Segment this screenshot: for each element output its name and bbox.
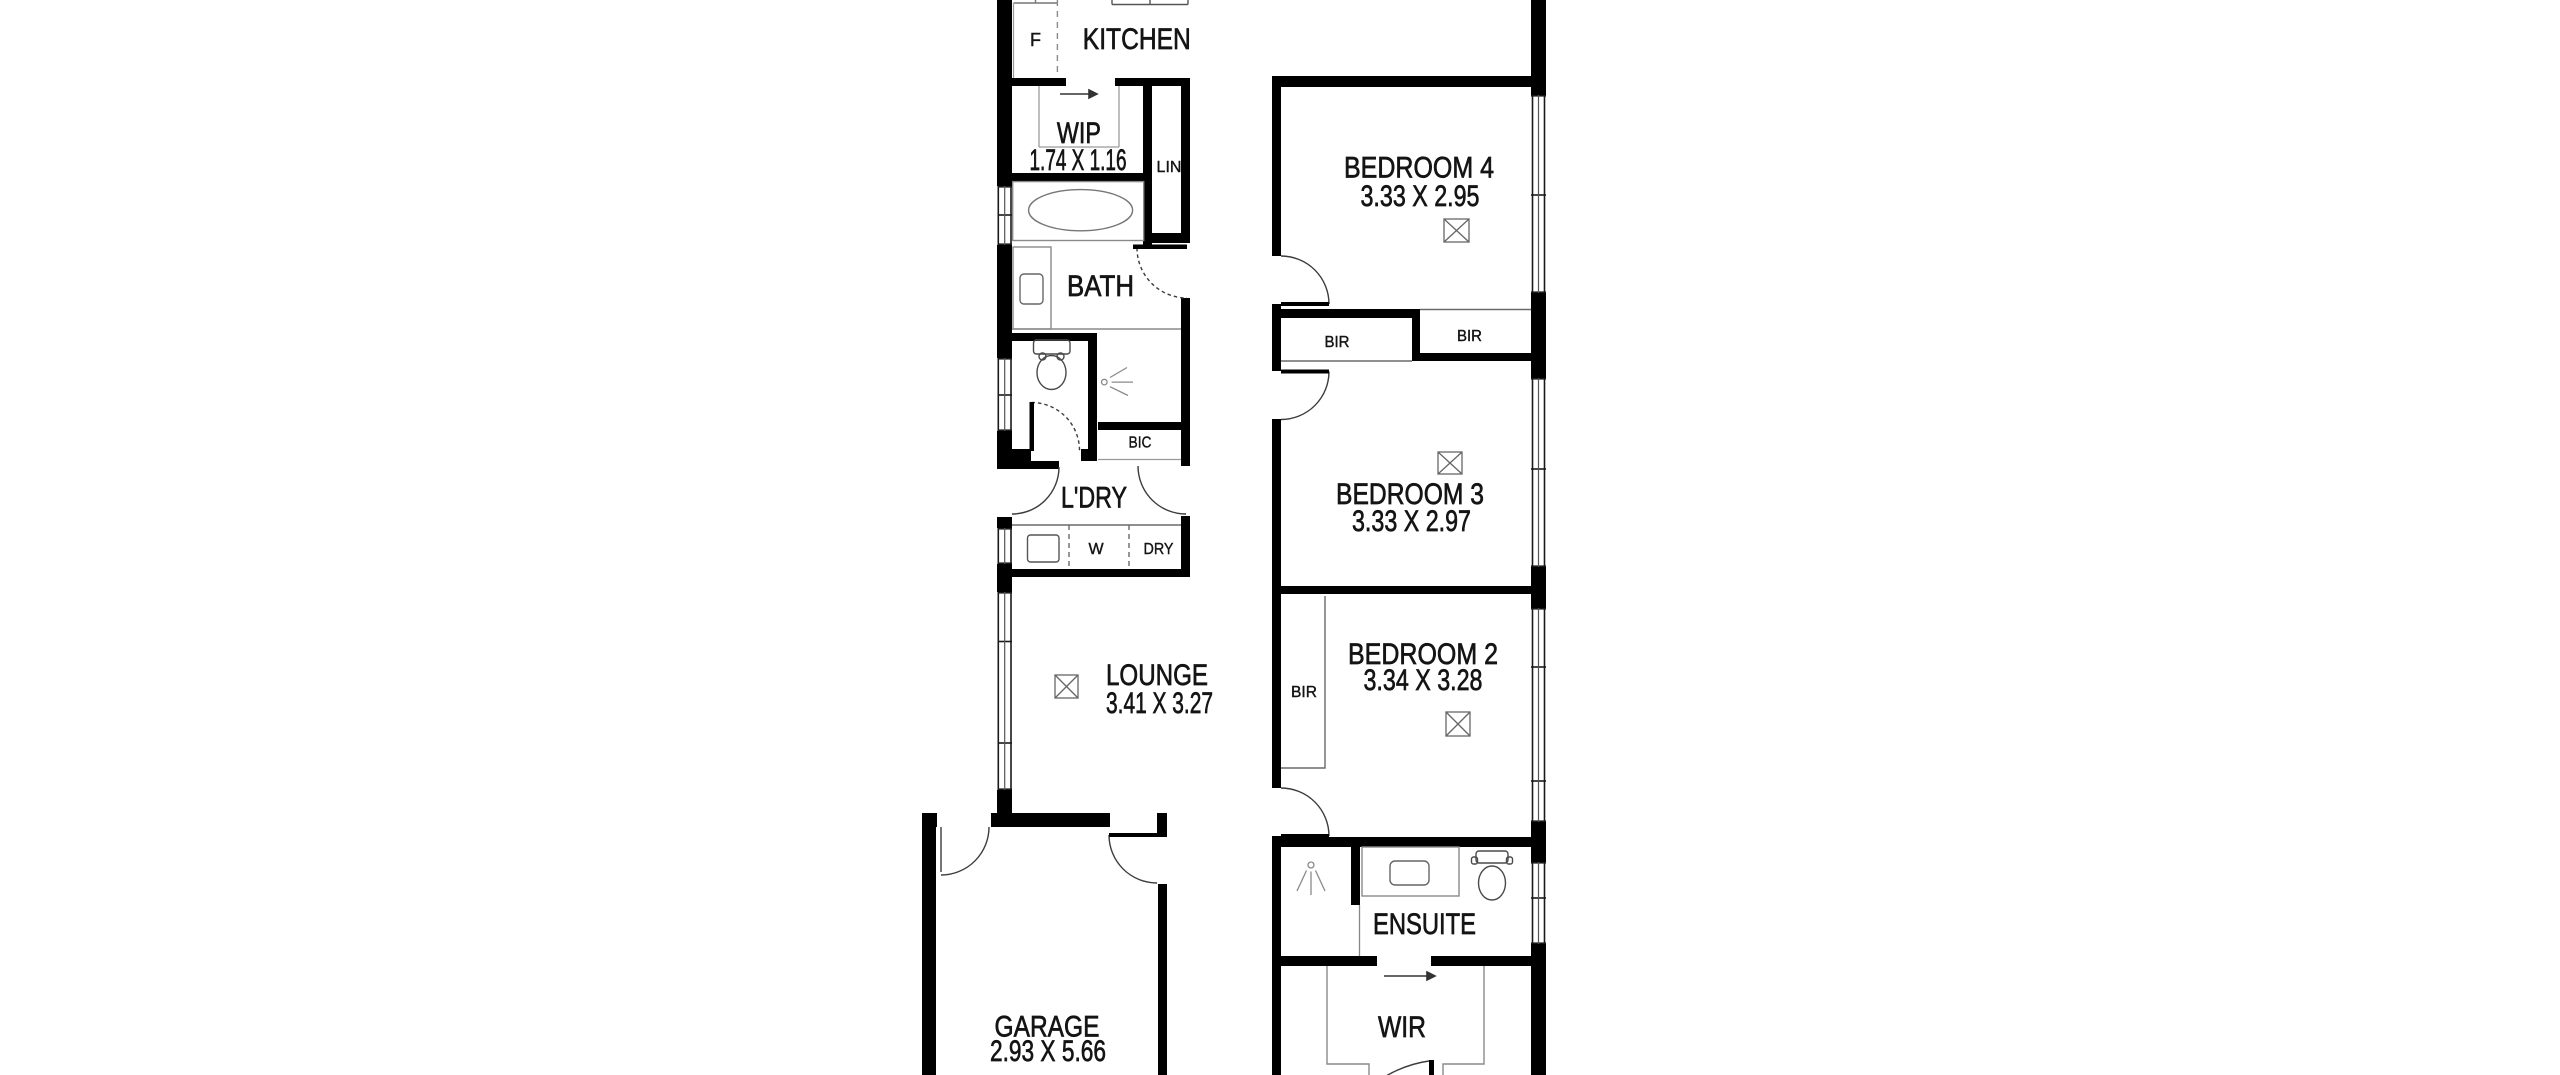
svg-text:W: W <box>1088 541 1104 558</box>
svg-text:DRY: DRY <box>1144 541 1174 558</box>
svg-text:WIR: WIR <box>1378 1011 1426 1044</box>
svg-text:LIN: LIN <box>1157 159 1182 176</box>
svg-text:3.34 X 3.28: 3.34 X 3.28 <box>1364 664 1483 697</box>
svg-text:L'DRY: L'DRY <box>1061 482 1127 515</box>
svg-text:2.93 X 5.66: 2.93 X 5.66 <box>990 1035 1106 1068</box>
svg-text:F: F <box>1030 30 1041 50</box>
svg-text:BIR: BIR <box>1291 684 1317 701</box>
svg-text:3.33 X 2.97: 3.33 X 2.97 <box>1352 505 1471 538</box>
svg-text:BIR: BIR <box>1325 334 1350 351</box>
svg-text:1.74 X 1.16: 1.74 X 1.16 <box>1030 144 1127 177</box>
svg-text:BATH: BATH <box>1067 270 1134 303</box>
svg-text:KITCHEN: KITCHEN <box>1083 23 1191 56</box>
svg-text:BIC: BIC <box>1129 435 1152 452</box>
svg-text:BIR: BIR <box>1457 328 1482 345</box>
svg-text:ENSUITE: ENSUITE <box>1373 908 1476 941</box>
svg-text:3.33 X 2.95: 3.33 X 2.95 <box>1361 180 1480 213</box>
svg-text:3.41 X 3.27: 3.41 X 3.27 <box>1106 687 1213 720</box>
